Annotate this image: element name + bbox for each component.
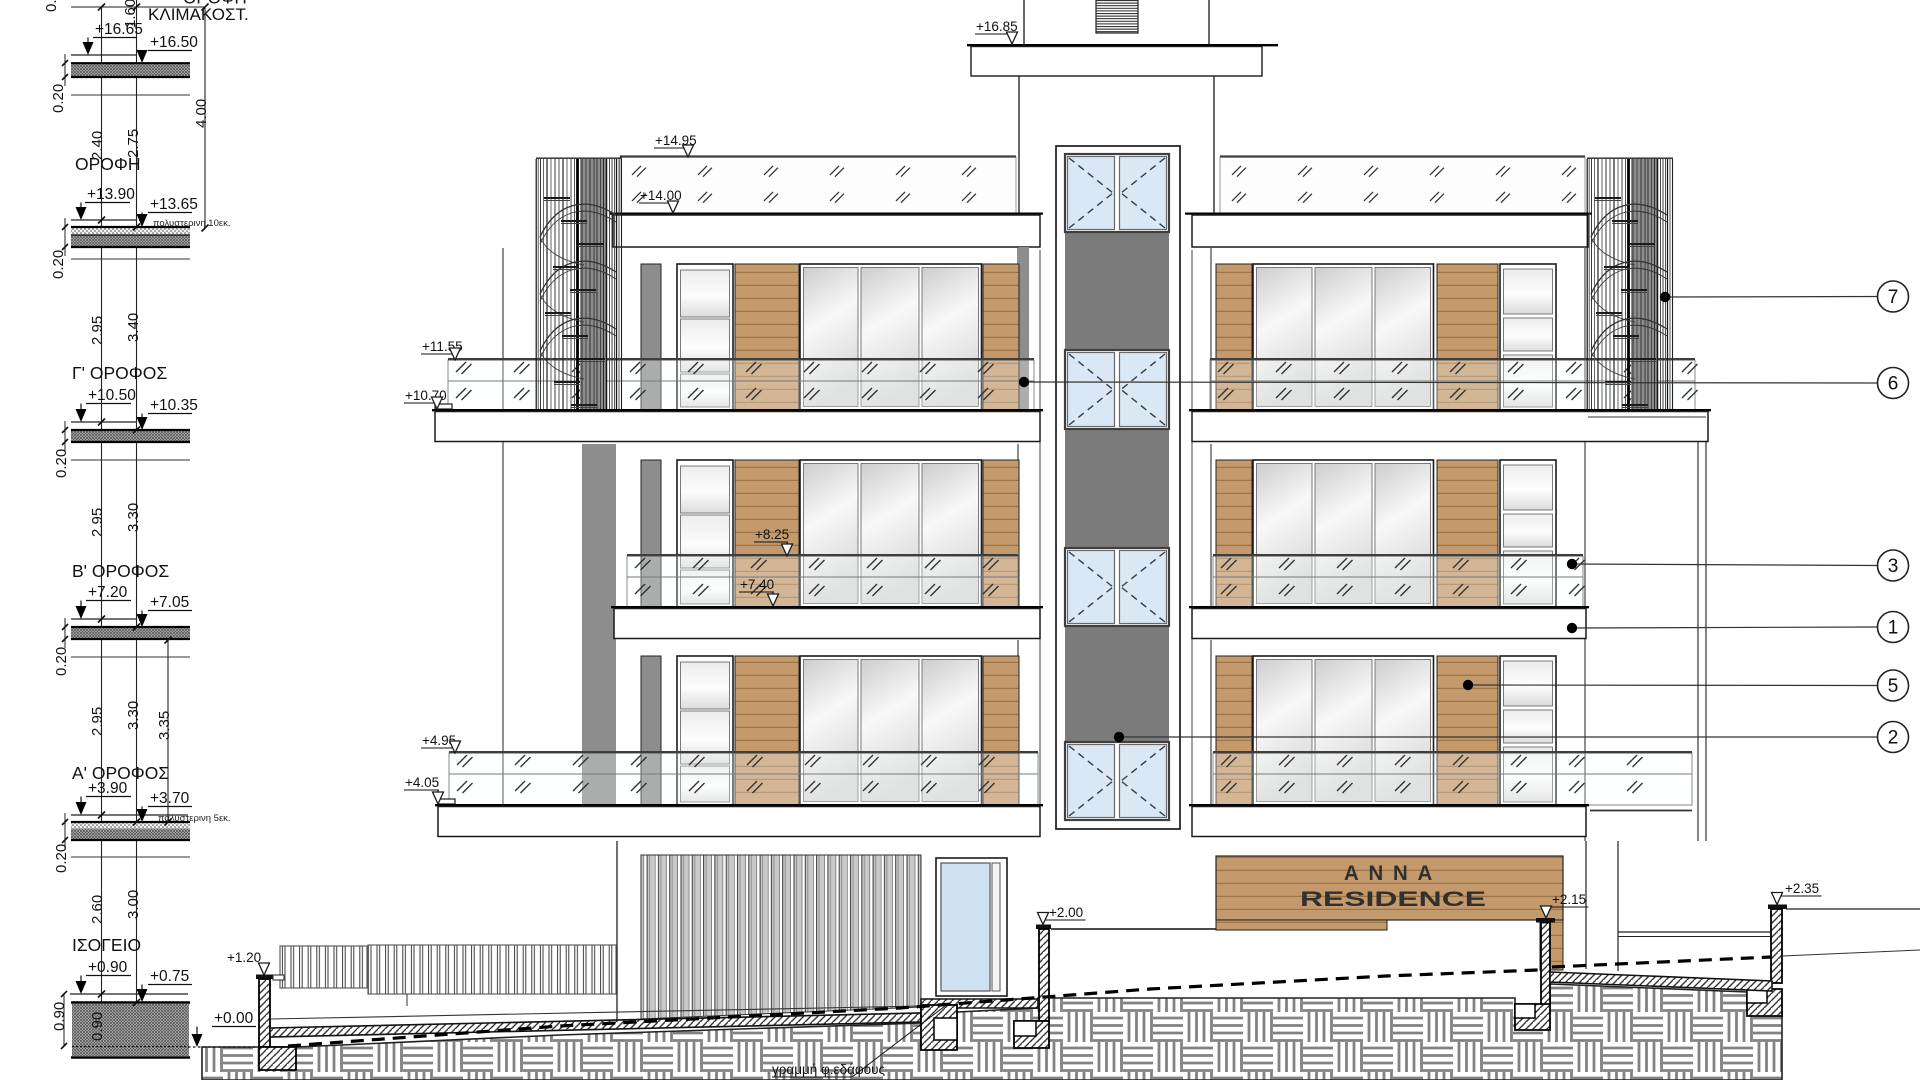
svg-text:1: 1 bbox=[1888, 618, 1899, 639]
svg-text:+7.40: +7.40 bbox=[740, 577, 774, 592]
svg-text:3: 3 bbox=[1888, 556, 1899, 577]
svg-text:0.20: 0.20 bbox=[50, 250, 67, 279]
svg-text:4.00: 4.00 bbox=[193, 99, 210, 128]
svg-text:+0.00: +0.00 bbox=[214, 1010, 254, 1027]
svg-text:+2.15: +2.15 bbox=[1552, 892, 1586, 907]
svg-text:0.20: 0.20 bbox=[53, 844, 70, 873]
svg-text:5: 5 bbox=[1888, 676, 1899, 697]
svg-text:+0.75: +0.75 bbox=[150, 968, 189, 985]
svg-text:2.95: 2.95 bbox=[89, 508, 106, 537]
svg-text:+7.20: +7.20 bbox=[88, 584, 128, 601]
svg-text:7: 7 bbox=[1888, 287, 1899, 308]
svg-text:6: 6 bbox=[1888, 374, 1899, 395]
svg-text:2.95: 2.95 bbox=[89, 316, 106, 345]
svg-text:+16.65: +16.65 bbox=[95, 21, 143, 38]
svg-text:3.35: 3.35 bbox=[156, 711, 173, 740]
svg-text:0.20: 0.20 bbox=[53, 647, 70, 676]
svg-text:ANNA: ANNA bbox=[1344, 862, 1442, 885]
svg-text:ΙΣΟΓΕΙΟ: ΙΣΟΓΕΙΟ bbox=[72, 935, 141, 955]
svg-text:+0.90: +0.90 bbox=[88, 959, 128, 976]
svg-text:+3.90: +3.90 bbox=[88, 780, 128, 797]
svg-text:+10.35: +10.35 bbox=[150, 397, 198, 414]
svg-text:Γ' ΟΡΟΦΟΣ: Γ' ΟΡΟΦΟΣ bbox=[72, 363, 167, 383]
svg-text:0.20: 0.20 bbox=[53, 449, 70, 478]
svg-text:+8.25: +8.25 bbox=[755, 527, 789, 542]
svg-text:+4.05: +4.05 bbox=[405, 775, 439, 790]
svg-text:+7.05: +7.05 bbox=[150, 594, 189, 611]
svg-text:ΚΛΙΜΑΚΟΣΤ.: ΚΛΙΜΑΚΟΣΤ. bbox=[148, 5, 249, 24]
svg-text:0.90: 0.90 bbox=[89, 1012, 106, 1041]
svg-text:2.60: 2.60 bbox=[89, 895, 106, 924]
svg-text:+10.50: +10.50 bbox=[88, 387, 136, 404]
svg-text:3.30: 3.30 bbox=[125, 701, 142, 730]
svg-text:2.95: 2.95 bbox=[89, 707, 106, 736]
svg-text:ΟΡΟΦΗ: ΟΡΟΦΗ bbox=[75, 154, 141, 174]
svg-text:+13.90: +13.90 bbox=[87, 186, 135, 203]
svg-text:0.20: 0.20 bbox=[50, 84, 67, 113]
svg-text:+2.00: +2.00 bbox=[1049, 905, 1083, 920]
svg-text:3.00: 3.00 bbox=[125, 890, 142, 919]
svg-text:+2.35: +2.35 bbox=[1785, 881, 1819, 896]
svg-text:2: 2 bbox=[1888, 728, 1899, 749]
svg-text:RESIDENCE: RESIDENCE bbox=[1300, 888, 1486, 911]
svg-text:Β' ΟΡΟΦΟΣ: Β' ΟΡΟΦΟΣ bbox=[72, 561, 169, 581]
svg-text:+16.50: +16.50 bbox=[150, 34, 198, 51]
svg-text:πολυστερινη 10εκ.: πολυστερινη 10εκ. bbox=[153, 218, 230, 229]
svg-text:+3.70: +3.70 bbox=[150, 790, 190, 807]
svg-text:παλυστερινη 5εκ.: παλυστερινη 5εκ. bbox=[158, 813, 231, 824]
svg-text:+13.65: +13.65 bbox=[150, 196, 198, 213]
svg-text:0.2: 0.2 bbox=[43, 0, 60, 12]
svg-text:3.30: 3.30 bbox=[125, 503, 142, 532]
svg-text:3.40: 3.40 bbox=[125, 313, 142, 342]
svg-text:0.90: 0.90 bbox=[51, 1002, 68, 1031]
svg-text:+1.20: +1.20 bbox=[227, 950, 261, 965]
